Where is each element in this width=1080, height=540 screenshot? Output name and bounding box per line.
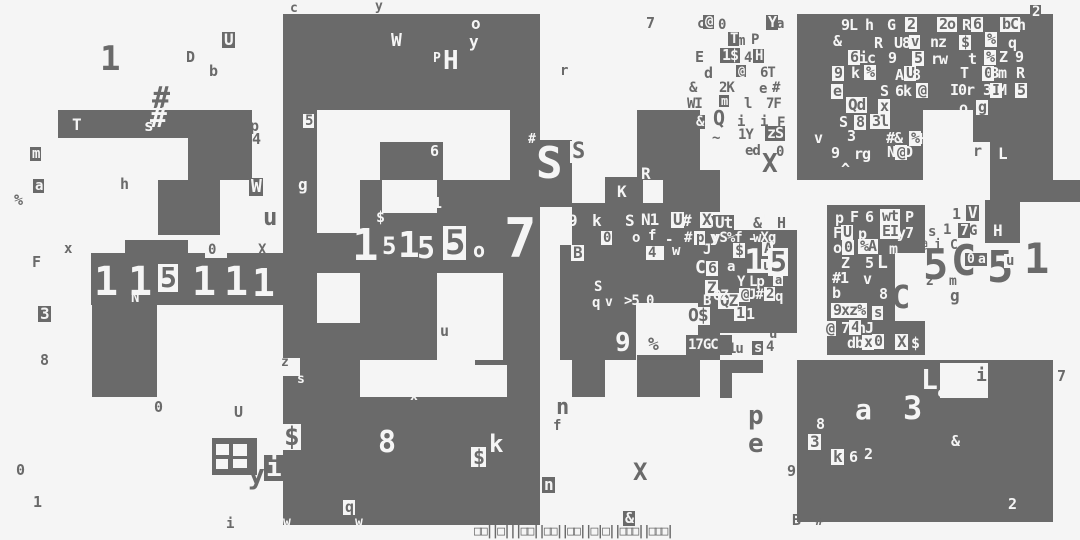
- block-rect: [990, 180, 1080, 202]
- glyph-char: $: [282, 424, 301, 450]
- glyph-char: e: [748, 431, 763, 457]
- glyph-char: e: [759, 82, 766, 96]
- glyph-char: m: [737, 34, 744, 48]
- glyph-char: 0: [646, 294, 653, 308]
- glyph-char: v: [863, 272, 871, 287]
- glyph-char: u: [263, 205, 276, 229]
- glyph-char: %: [984, 50, 996, 65]
- glyph-char: w: [672, 244, 679, 258]
- glyph-char: 6T: [760, 66, 775, 80]
- glyph-char: J: [703, 243, 710, 257]
- glyph-char: rw: [931, 52, 947, 67]
- glyph-char: o: [959, 101, 967, 116]
- glyph-char: H: [777, 216, 785, 231]
- glyph-char: 0: [842, 240, 854, 255]
- glyph-char: o: [833, 241, 841, 256]
- glyph-char: 1: [252, 264, 274, 302]
- glyph-char: 4: [766, 340, 773, 354]
- glyph-char: F: [32, 255, 40, 270]
- glyph-char: i: [264, 455, 283, 481]
- block-rect: [125, 240, 188, 254]
- glyph-char: y: [469, 34, 478, 50]
- glyph-char: J#: [748, 288, 763, 302]
- glyph-char: p: [748, 403, 763, 429]
- glyph-char: 6: [706, 261, 718, 276]
- glyph-char: I0r: [950, 83, 974, 98]
- block-rect: [158, 180, 220, 235]
- glyph-char: 1: [192, 262, 215, 302]
- room-rect: [437, 273, 503, 360]
- glyph-char: H: [443, 48, 458, 74]
- glyph-char: X: [762, 151, 777, 177]
- glyph-char: 5: [417, 234, 434, 264]
- glyph-char: q: [775, 290, 782, 304]
- glyph-char: 1: [746, 307, 754, 322]
- glyph-char: g: [976, 100, 988, 115]
- glyph-char: m: [30, 147, 41, 161]
- glyph-char: l: [744, 97, 751, 111]
- glyph-char: 4: [648, 246, 655, 260]
- glyph-char: ed: [745, 144, 760, 158]
- glyph-char: W: [249, 178, 263, 196]
- glyph-char: x: [410, 390, 417, 403]
- glyph-char: 0: [154, 400, 162, 415]
- glyph-char: q: [592, 296, 599, 310]
- glyph-char: 3: [38, 306, 51, 322]
- block-rect: [572, 350, 605, 397]
- glyph-char: 2o: [937, 17, 957, 32]
- glyph-char: u: [440, 324, 448, 339]
- glyph-char: k: [851, 66, 859, 81]
- block-rect: [188, 138, 252, 180]
- glyph-char: 9: [787, 464, 795, 479]
- glyph-char: @: [824, 321, 836, 336]
- glyph-char: $: [471, 447, 486, 467]
- glyph-char: 7: [1057, 369, 1065, 384]
- glyph-char: 1: [33, 495, 41, 510]
- glyph-char: 1: [224, 262, 247, 302]
- glyph-char: c: [290, 2, 297, 15]
- glyph-char: m: [889, 242, 897, 257]
- glyph-char: c: [937, 387, 944, 400]
- glyph-char: db: [847, 336, 863, 351]
- glyph-char: O$: [686, 307, 710, 325]
- glyph-char: C: [891, 281, 909, 313]
- glyph-char: a: [33, 179, 44, 193]
- glyph-char: 1: [943, 223, 950, 237]
- glyph-char: 3: [847, 129, 855, 144]
- glyph-char: N1: [641, 212, 658, 228]
- glyph-char: 2: [926, 275, 933, 288]
- glyph-char: 8: [816, 417, 824, 432]
- glyph-char: &: [694, 115, 705, 129]
- glyph-char: P: [905, 210, 913, 225]
- glyph-char: B: [792, 513, 800, 528]
- glyph-char: L: [998, 146, 1007, 162]
- room-rect: [443, 142, 510, 180]
- glyph-char: C: [695, 259, 705, 277]
- glyph-char: 0: [776, 145, 783, 159]
- glyph-char: P: [751, 33, 758, 47]
- glyph-char: g: [296, 177, 309, 193]
- glyph-char: 6: [430, 144, 438, 159]
- glyph-char: 0: [16, 463, 24, 478]
- glyph-char: $: [959, 35, 971, 50]
- glyph-char: U: [222, 32, 235, 48]
- glyph-char: 5: [865, 256, 873, 271]
- glyph-char: u: [769, 327, 776, 341]
- glyph-char: >5: [624, 294, 639, 308]
- glyph-char: i: [226, 517, 233, 531]
- glyph-char: o: [471, 16, 480, 32]
- glyph-char: z: [281, 356, 288, 369]
- glyph-char: h: [1017, 18, 1025, 33]
- room-rect: [317, 110, 510, 142]
- glitch-canvas: 1DbU##Tsp4mha%Wugx0XF115111N380U01icyWoy…: [0, 0, 1080, 540]
- glyph-char: x: [64, 242, 71, 256]
- glyph-char: ^: [841, 162, 849, 177]
- glyph-char: a: [727, 260, 734, 274]
- glyph-char: X: [633, 460, 646, 484]
- glyph-char: U8: [894, 36, 910, 51]
- block-rect: [560, 245, 572, 360]
- glyph-char: i: [974, 367, 988, 385]
- glyph-char: 4: [744, 51, 751, 65]
- glyph-char: k: [592, 213, 601, 229]
- glyph-char: %: [646, 336, 660, 354]
- glyph-char: 9L: [841, 18, 857, 33]
- glyph-char: &: [689, 81, 696, 95]
- glyph-char: K: [617, 184, 626, 200]
- glyph-char: 5: [443, 226, 466, 260]
- glyph-char: 6k: [895, 84, 911, 99]
- glyph-char: Q: [711, 108, 726, 128]
- glyph-char: #: [682, 213, 691, 229]
- glyph-char: &: [833, 34, 841, 49]
- glyph-char: @: [916, 83, 928, 98]
- glyph-char: u: [1004, 254, 1015, 268]
- glyph-char: 2K: [719, 81, 734, 95]
- glyph-char: nz: [930, 35, 946, 50]
- glyph-char: %: [14, 193, 22, 208]
- glyph-char: b: [379, 366, 394, 392]
- glyph-char: R: [962, 18, 970, 33]
- glyph-char: 4: [252, 132, 260, 147]
- glyph-char: H: [753, 49, 764, 63]
- glyph-char: 7: [504, 212, 536, 266]
- glyph-char: 6: [849, 450, 857, 465]
- glyph-char: 6: [971, 17, 983, 32]
- room-rect: [317, 273, 360, 323]
- glyph-char: E: [695, 50, 703, 65]
- glyph-char: 1: [398, 228, 419, 264]
- glyph-char: S: [570, 141, 586, 163]
- glyph-char: 1Y: [738, 128, 753, 142]
- glyph-char: h: [865, 18, 873, 33]
- glyph-char: #: [684, 231, 691, 245]
- glyph-char: L: [921, 366, 937, 394]
- glyph-char: 9: [831, 146, 839, 161]
- glyph-char: G: [887, 18, 895, 33]
- glyph-char: 1$: [720, 48, 740, 63]
- glyph-char: 0: [872, 334, 884, 349]
- glyph-char: 8: [40, 353, 48, 368]
- glyph-char: QZ: [713, 289, 728, 303]
- glyph-char: a: [776, 17, 783, 31]
- glyph-char: 5: [303, 114, 314, 128]
- glyph-char: r: [973, 144, 981, 159]
- glyph-char: W: [391, 32, 401, 50]
- glyph-char: #: [772, 81, 779, 95]
- glyph-char: y: [248, 461, 264, 489]
- glyph-char: t: [968, 52, 976, 67]
- glyph-char: 5: [382, 234, 395, 258]
- glyph-char: @: [736, 65, 746, 77]
- glyph-char: b: [209, 64, 217, 79]
- glyph-char: 8: [378, 428, 395, 458]
- glyph-char: 17GC: [688, 338, 718, 352]
- glyph-char: #: [528, 133, 535, 146]
- glyph-char: 2: [1008, 497, 1016, 512]
- glyph-char: o: [632, 231, 639, 245]
- window-pane: [233, 444, 247, 456]
- window-pane: [216, 444, 229, 455]
- glyph-char: 1: [352, 224, 378, 268]
- glyph-char: 1: [433, 196, 441, 211]
- glyph-char: 7F: [766, 97, 781, 111]
- glyph-char: v: [814, 131, 822, 146]
- room-rect: [382, 180, 437, 213]
- glyph-char: e: [831, 84, 843, 99]
- glyph-char: o: [473, 240, 484, 260]
- glyph-char: 5: [158, 264, 178, 292]
- glyph-char: Qd: [846, 97, 867, 113]
- glyph-char: @: [703, 15, 714, 29]
- glyph-char: ~: [712, 131, 719, 145]
- block-rect: [720, 373, 732, 398]
- glyph-char: 2: [764, 287, 775, 301]
- glyph-char: d: [704, 66, 712, 81]
- glyph-char: w: [355, 516, 362, 529]
- glyph-char: 9: [568, 213, 577, 229]
- glyph-char: zS: [765, 126, 785, 141]
- glyph-char: 0: [208, 243, 215, 257]
- glyph-char: R: [874, 36, 882, 51]
- glyph-char: Bm: [990, 66, 1006, 81]
- glyph-char: #: [815, 513, 823, 528]
- glyph-char: 3: [808, 434, 821, 450]
- glyph-char: 8: [854, 115, 866, 130]
- glyph-char: V: [966, 205, 979, 221]
- glyph-char: 1: [94, 262, 117, 302]
- glyph-char: &: [753, 216, 761, 231]
- glyph-char: w: [283, 516, 290, 529]
- glyph-char: v: [603, 296, 614, 309]
- block-rect: [720, 360, 763, 373]
- glyph-char: b: [832, 286, 840, 301]
- glyph-char: 0: [718, 18, 725, 32]
- glyph-char: %: [864, 65, 876, 80]
- glyph-char: 1: [952, 207, 960, 222]
- glyph-char: N: [887, 145, 895, 160]
- glyph-char: rg: [854, 147, 870, 162]
- glyph-char: N: [131, 291, 138, 305]
- glyph-char: n: [542, 477, 555, 493]
- glyph-char: H: [919, 132, 927, 147]
- glyph-char: 3l: [870, 114, 890, 129]
- glyph-char: 0: [601, 231, 612, 245]
- glyph-char: y: [375, 0, 382, 13]
- glyph-char: &: [951, 434, 959, 449]
- room-rect: [360, 142, 380, 180]
- glyph-char: $: [911, 336, 919, 351]
- glyph-char: a: [976, 253, 987, 266]
- room-rect: [923, 110, 973, 180]
- glyph-char: S: [594, 280, 601, 294]
- glyph-char: 9xz%: [831, 303, 867, 318]
- glyph-char: L: [877, 254, 887, 272]
- glyph-char: q: [343, 500, 355, 515]
- block-rect: [637, 355, 700, 397]
- window-pane: [233, 459, 247, 468]
- glyph-char: 2: [905, 17, 917, 32]
- glyph-char: X: [258, 243, 265, 257]
- glyph-char: f: [648, 229, 655, 243]
- glyph-char: 8: [879, 287, 887, 302]
- glyph-char: %A: [858, 239, 878, 254]
- room-rect: [360, 360, 475, 397]
- glyph-char: 7: [646, 16, 654, 31]
- glyph-char: y7: [897, 226, 913, 241]
- glyph-char: Z: [999, 50, 1007, 65]
- glyph-char: a: [855, 396, 871, 424]
- glyph-char: D: [904, 145, 912, 160]
- glyph-char: 0: [965, 253, 976, 266]
- glyph-char: R: [641, 166, 650, 182]
- glyph-char: %: [985, 32, 997, 47]
- block-rect: [668, 173, 720, 181]
- glyph-char: Ut: [713, 215, 734, 231]
- glyph-char: WI: [687, 97, 702, 111]
- glyph-char: s: [752, 341, 763, 355]
- glyph-char: F: [850, 210, 858, 225]
- room-rect: [475, 365, 507, 397]
- glyph-char: S: [625, 213, 634, 229]
- glyph-char: D: [186, 50, 194, 65]
- glyph-char: s: [297, 373, 304, 386]
- glyph-char: 9: [615, 330, 630, 356]
- glyph-char: 2: [1030, 5, 1041, 19]
- glyph-char: S: [839, 115, 847, 130]
- glyph-char: X: [895, 334, 908, 350]
- glyph-char: 9: [832, 66, 844, 81]
- glyph-char: P: [433, 52, 440, 65]
- block-rect: [92, 305, 157, 397]
- glyph-char: k: [831, 449, 844, 465]
- glyph-char: 1: [100, 42, 119, 76]
- glyph-char: S: [536, 142, 562, 186]
- glyph-char: v: [909, 35, 920, 49]
- glyph-char: 1: [734, 306, 746, 321]
- glyph-char: f: [553, 419, 560, 433]
- glyph-char: s: [144, 118, 153, 134]
- glyph-char: H: [991, 223, 1004, 239]
- glyph-char: r: [560, 64, 567, 78]
- glyph-char: s: [872, 306, 883, 320]
- glyph-char: 3: [903, 392, 921, 424]
- glyph-char: 5: [1015, 83, 1027, 98]
- glyph-char: 9: [1015, 50, 1023, 65]
- glyph-char: T: [960, 66, 968, 81]
- glyph-char: 1: [1024, 238, 1048, 280]
- glyph-char: 1u: [728, 342, 743, 356]
- window-pane: [216, 459, 228, 469]
- glyph-char: R: [1016, 66, 1024, 81]
- glyph-char: &: [741, 212, 750, 228]
- tile-strip: □□||□|||□□||□□||□□||□|□||□□□||□□□|: [474, 524, 672, 539]
- glyph-char: A: [895, 68, 903, 83]
- glyph-char: h: [120, 177, 128, 192]
- glyph-char: 5: [768, 248, 788, 276]
- glyph-char: g: [948, 288, 961, 304]
- glyph-char: a: [773, 274, 783, 286]
- glyph-char: M: [998, 83, 1006, 98]
- glyph-char: 2: [864, 447, 872, 462]
- glyph-char: k: [489, 432, 502, 456]
- glyph-char: 9: [888, 51, 896, 66]
- glyph-char: U: [234, 405, 242, 420]
- glyph-char: B: [571, 245, 584, 261]
- glyph-char: n: [556, 397, 568, 419]
- glyph-char: T: [72, 117, 81, 133]
- glyph-char: 6: [865, 210, 873, 225]
